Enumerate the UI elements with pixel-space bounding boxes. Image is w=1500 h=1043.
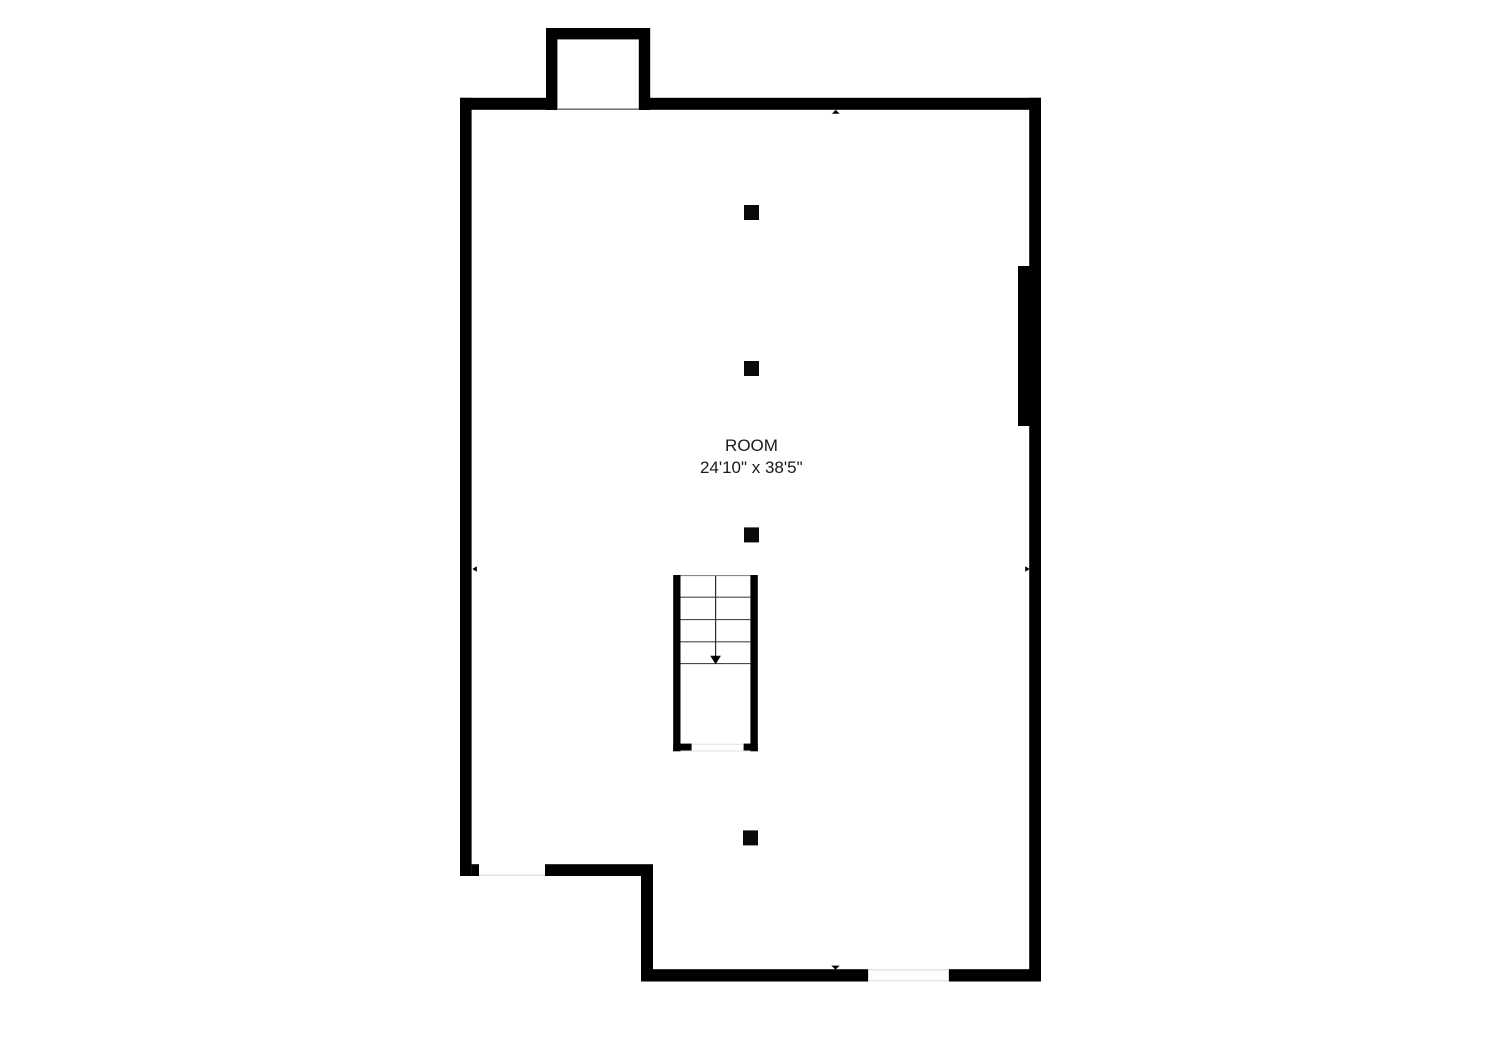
svg-text:24'10" x 38'5": 24'10" x 38'5": [700, 458, 803, 477]
svg-text:ROOM: ROOM: [725, 436, 778, 455]
